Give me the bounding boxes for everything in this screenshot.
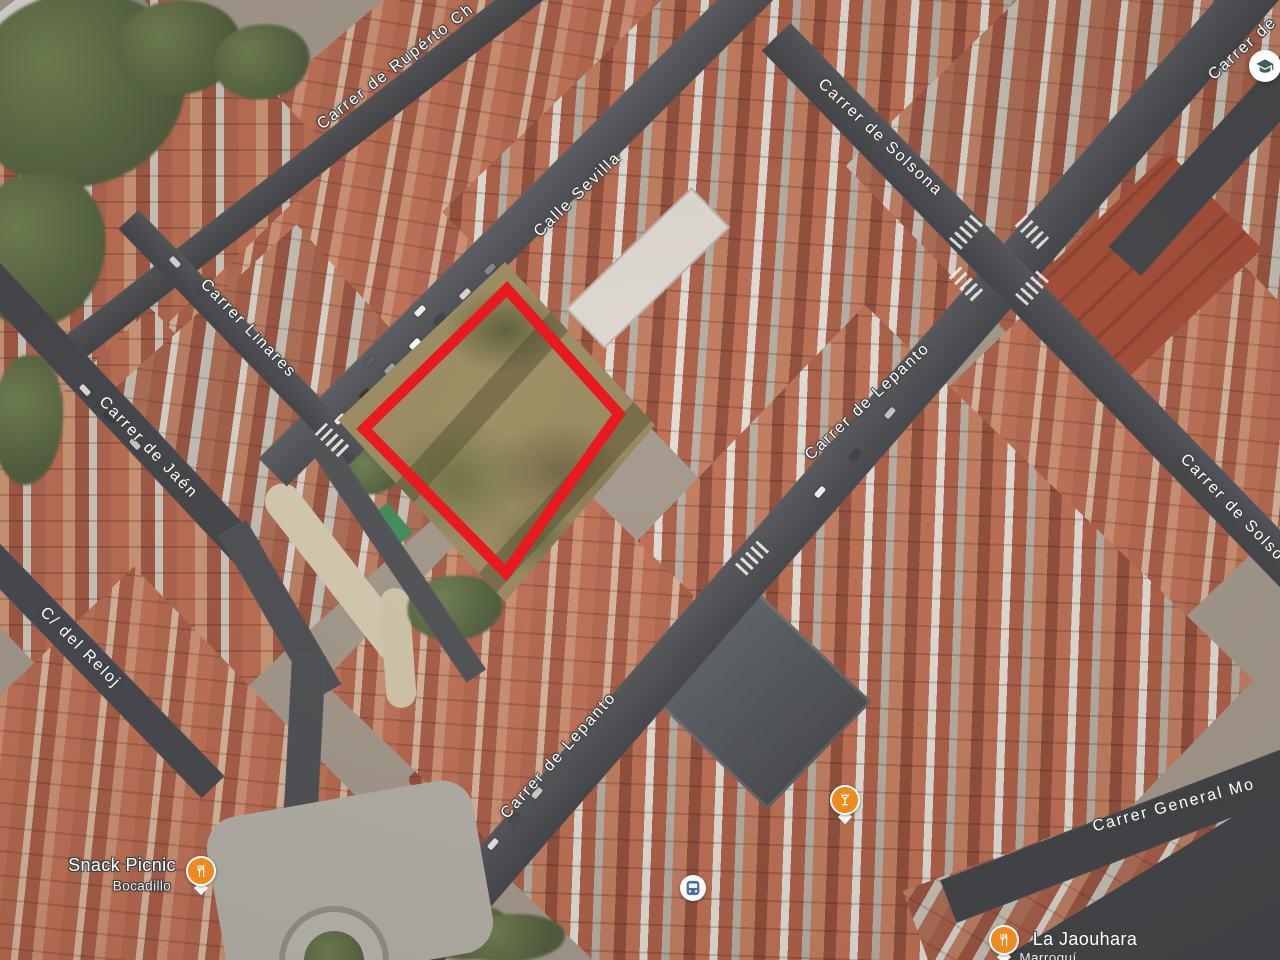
poi-sublabel-bocadillo: Bocadillo — [113, 879, 171, 893]
bus-stop-icon[interactable] — [680, 875, 706, 901]
poi-label-la-jaouhara[interactable]: La Jaouhara — [1033, 930, 1137, 948]
restaurant-icon — [989, 925, 1019, 955]
poi-label-snack-picnic[interactable]: Snack Picnic — [68, 856, 176, 874]
restaurant-pin[interactable] — [186, 856, 216, 886]
restaurant-pin[interactable] — [989, 925, 1019, 955]
bar-pin[interactable] — [830, 785, 860, 815]
restaurant-icon — [186, 856, 216, 886]
satellite-map[interactable]: Carrer de Rupérto Ch Calle Sevilla Carre… — [0, 0, 1280, 960]
cocktail-icon — [830, 785, 860, 815]
poi-sublabel-marroqui: Marroquí — [1019, 951, 1076, 960]
school-icon[interactable] — [1249, 50, 1280, 82]
